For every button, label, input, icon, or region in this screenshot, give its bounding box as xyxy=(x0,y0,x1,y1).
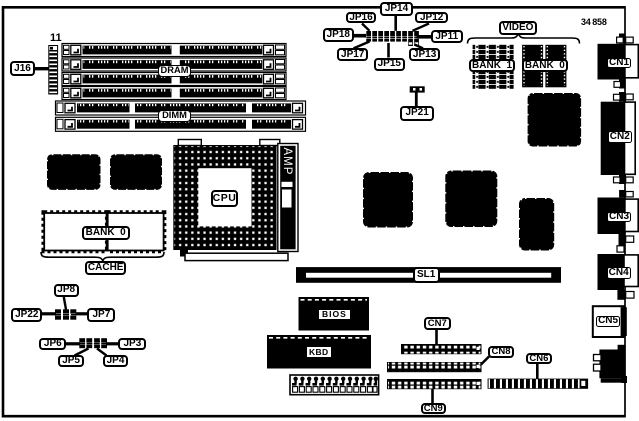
svg-text:AMP: AMP xyxy=(281,148,293,176)
